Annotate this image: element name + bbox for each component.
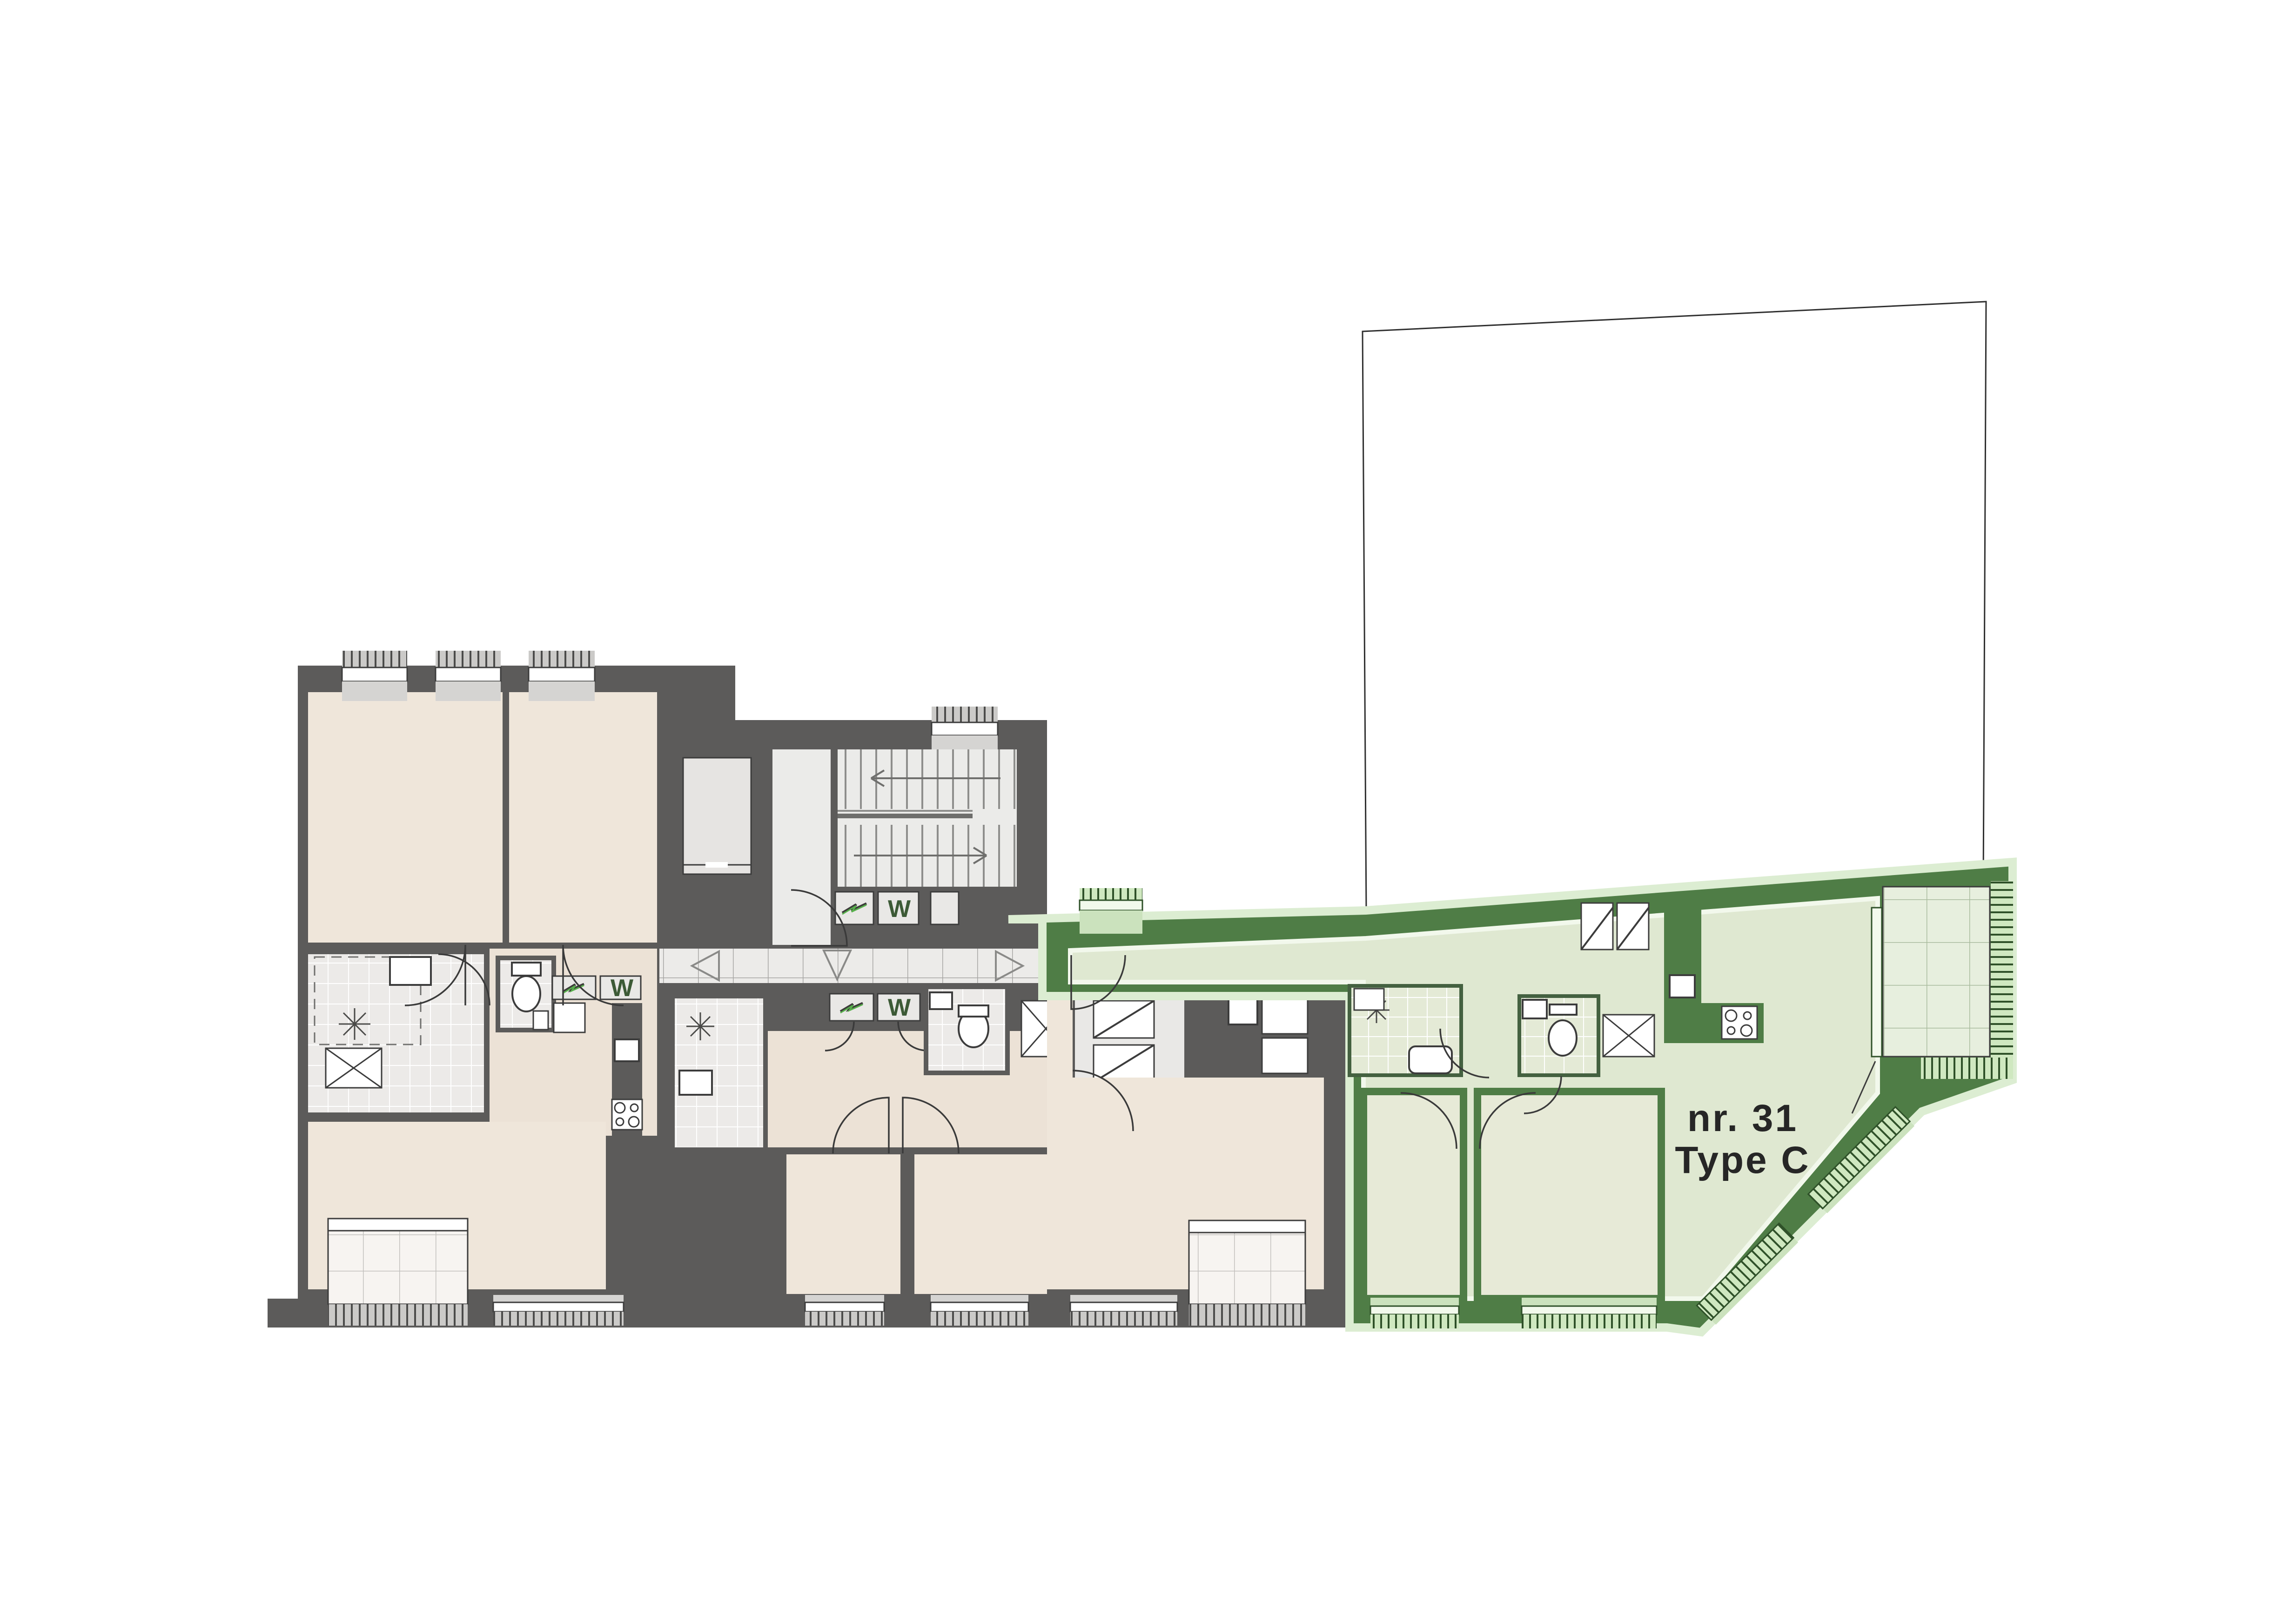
bedroom-floor	[308, 692, 503, 943]
hob-icon	[612, 1099, 642, 1130]
bedroom-floor	[914, 1154, 1047, 1294]
bedroom-floor	[1363, 1092, 1464, 1299]
window	[1370, 1298, 1459, 1328]
window	[805, 1295, 884, 1326]
stair-landing	[772, 749, 831, 945]
apartment-1: W	[308, 949, 657, 1326]
toilet-room	[498, 958, 554, 1030]
railing	[1189, 1304, 1305, 1326]
meter-water-label: W	[888, 896, 911, 923]
apartment-type-label: Type C	[1675, 1139, 1810, 1181]
window	[529, 651, 595, 701]
shower-icon	[339, 1008, 370, 1040]
stair-rail	[838, 814, 973, 818]
washbasin-icon	[930, 992, 952, 1009]
sliding-door	[1872, 908, 1882, 1057]
toilet-room	[926, 987, 1007, 1073]
sink-icon	[615, 1039, 639, 1061]
window	[1080, 888, 1142, 934]
bedroom-floor	[509, 692, 657, 943]
mirror	[533, 1011, 548, 1030]
window	[493, 1295, 624, 1326]
meter-water-label: W	[611, 975, 634, 1002]
balcony	[1189, 1220, 1305, 1326]
railing	[1991, 881, 2013, 1079]
adjacent-building-outline	[1363, 302, 1986, 910]
floor-plan: W	[0, 0, 2296, 1624]
window	[931, 1295, 1028, 1326]
window	[342, 651, 407, 701]
window	[1070, 1295, 1177, 1326]
meter-water-label: W	[888, 994, 911, 1021]
window	[932, 707, 998, 753]
corridor	[659, 949, 1070, 983]
shower-icon	[686, 1012, 714, 1040]
window	[1522, 1298, 1657, 1328]
shaft	[1603, 1015, 1654, 1057]
bedroom-floor	[1477, 1092, 1661, 1299]
meter-closet: W	[835, 892, 959, 924]
apartment-number-label: nr. 31	[1687, 1097, 1798, 1139]
toilet-icon	[512, 976, 540, 1011]
elevator	[683, 758, 751, 874]
balcony	[328, 1219, 468, 1326]
hob-icon	[1722, 1006, 1757, 1039]
washbasin-icon	[390, 957, 431, 985]
sink-icon	[1670, 975, 1695, 997]
staircase	[838, 749, 1017, 887]
window	[436, 651, 501, 701]
bathroom	[1349, 986, 1461, 1075]
washbasin-icon	[679, 1071, 712, 1095]
fridge-icon	[554, 1003, 585, 1032]
shaft	[326, 1048, 382, 1088]
toilet-icon	[1549, 1020, 1577, 1056]
kitchen	[1187, 995, 1310, 1078]
apartment-label: nr. 31 Type C	[1675, 1097, 1810, 1181]
railing	[1921, 1058, 2013, 1079]
sink-icon	[1229, 998, 1257, 1024]
washbasin-icon	[1523, 1000, 1547, 1018]
toilet-room	[1519, 996, 1598, 1075]
washbasin-icon	[1354, 989, 1384, 1010]
entry-floor	[1047, 996, 1073, 1078]
railing	[328, 1304, 468, 1326]
bedroom-floor	[786, 1154, 900, 1294]
